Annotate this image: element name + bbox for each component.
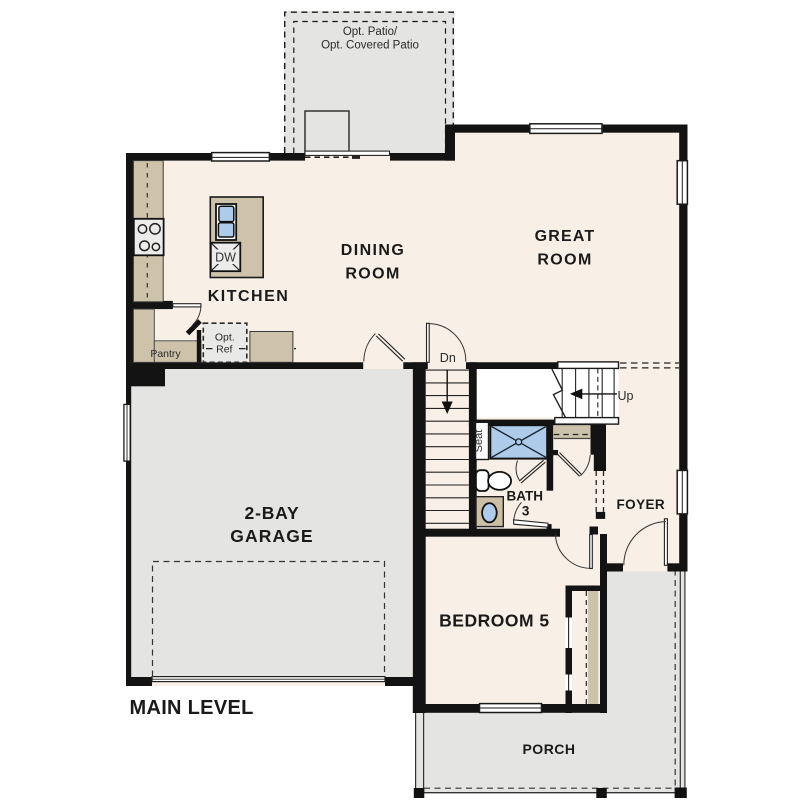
svg-text:FOYER: FOYER [617, 497, 666, 512]
svg-text:Seat: Seat [473, 430, 485, 453]
svg-text:DINING: DINING [341, 242, 405, 259]
svg-text:2-BAY: 2-BAY [245, 503, 300, 523]
svg-text:Pantry: Pantry [150, 348, 181, 360]
svg-text:BATH: BATH [507, 488, 544, 503]
svg-text:Up: Up [618, 389, 634, 403]
svg-text:Dn: Dn [440, 351, 456, 365]
svg-text:Ref: Ref [216, 344, 232, 356]
svg-text:Opt. Covered Patio: Opt. Covered Patio [321, 40, 419, 52]
svg-text:Opt. Patio/: Opt. Patio/ [343, 26, 398, 38]
svg-text:ROOM: ROOM [345, 265, 400, 282]
svg-text:GARAGE: GARAGE [230, 526, 313, 546]
svg-text:3: 3 [522, 504, 530, 519]
svg-text:DW: DW [215, 251, 236, 265]
svg-text:MAIN LEVEL: MAIN LEVEL [130, 697, 254, 719]
svg-text:ROOM: ROOM [537, 252, 592, 269]
svg-text:GREAT: GREAT [535, 228, 596, 245]
svg-text:KITCHEN: KITCHEN [208, 288, 290, 305]
svg-text:BEDROOM 5: BEDROOM 5 [439, 611, 549, 631]
svg-text:PORCH: PORCH [522, 741, 575, 757]
svg-text:Opt.: Opt. [215, 331, 235, 343]
